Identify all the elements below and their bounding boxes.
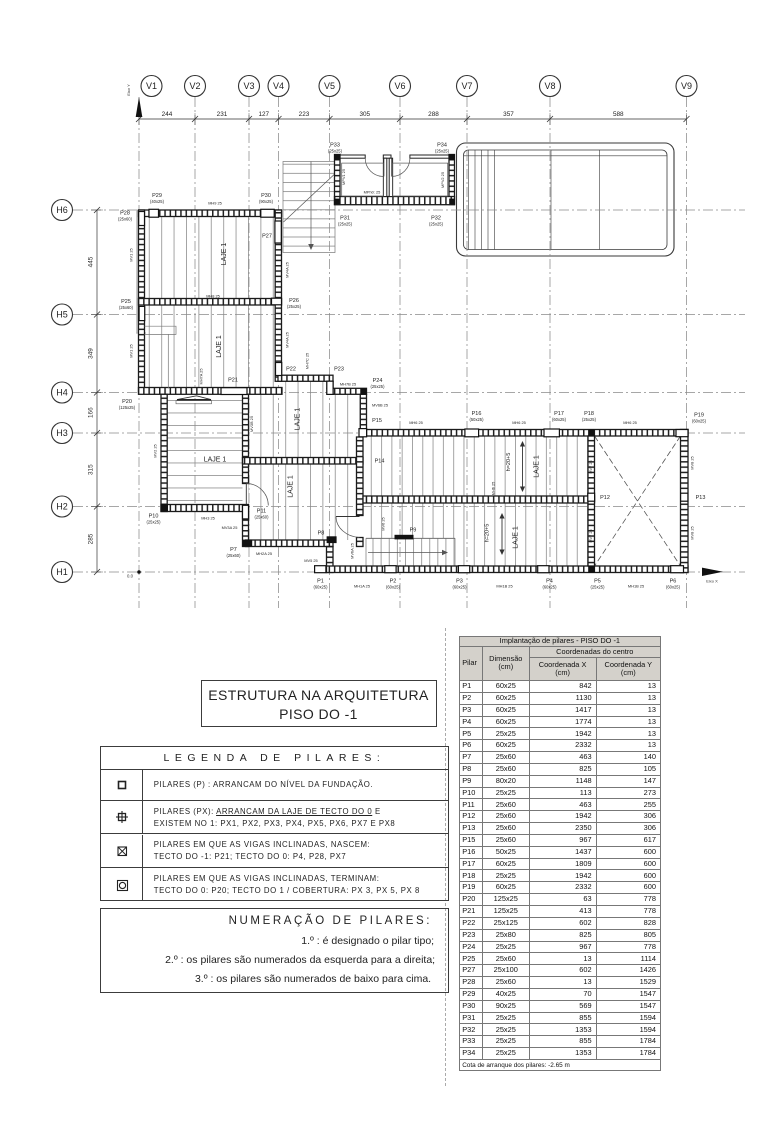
svg-text:MV1 25: MV1 25 xyxy=(129,344,134,357)
svg-text:MV7 25: MV7 25 xyxy=(588,529,593,542)
svg-text:MV4A 25: MV4A 25 xyxy=(284,262,289,278)
svg-text:(25x60): (25x60) xyxy=(227,553,242,558)
svg-text:MH7B 25: MH7B 25 xyxy=(340,382,356,387)
svg-text:(25x60): (25x60) xyxy=(255,515,270,520)
svg-text:0.0: 0.0 xyxy=(127,574,134,579)
svg-text:LAJE 1: LAJE 1 xyxy=(534,455,541,478)
svg-text:P23: P23 xyxy=(334,367,344,373)
svg-text:MH8 25: MH8 25 xyxy=(206,294,220,299)
svg-text:(25x25): (25x25) xyxy=(582,417,597,422)
svg-text:LAJE 1: LAJE 1 xyxy=(216,335,223,358)
svg-text:285: 285 xyxy=(88,533,95,544)
svg-text:(25x60): (25x60) xyxy=(118,217,133,222)
svg-text:(25x25): (25x25) xyxy=(287,304,302,309)
svg-text:(90x25): (90x25) xyxy=(259,199,274,204)
svg-text:(25x60): (25x60) xyxy=(119,305,134,310)
svg-text:(60x25): (60x25) xyxy=(552,417,567,422)
svg-text:MPV2 25: MPV2 25 xyxy=(440,172,445,188)
svg-text:P8: P8 xyxy=(318,531,325,537)
svg-text:(25x25): (25x25) xyxy=(591,585,606,590)
svg-text:(25x25): (25x25) xyxy=(429,221,444,226)
svg-text:(50x25): (50x25) xyxy=(470,417,485,422)
svg-text:P21: P21 xyxy=(228,378,238,384)
svg-text:349: 349 xyxy=(88,348,95,359)
svg-text:P13: P13 xyxy=(696,495,706,501)
svg-text:(60x25): (60x25) xyxy=(314,585,329,590)
svg-text:MV6B 25: MV6B 25 xyxy=(372,403,388,408)
svg-text:(25x25): (25x25) xyxy=(338,221,353,226)
svg-text:LAJE 1: LAJE 1 xyxy=(295,408,302,431)
svg-text:V3: V3 xyxy=(243,81,254,91)
svg-text:P14: P14 xyxy=(375,459,385,465)
svg-text:MH6 25: MH6 25 xyxy=(623,420,637,425)
svg-text:Eixo Y: Eixo Y xyxy=(126,84,131,96)
svg-text:(60x25): (60x25) xyxy=(386,585,401,590)
svg-text:MV7 25: MV7 25 xyxy=(588,460,593,473)
svg-text:166: 166 xyxy=(88,407,95,418)
svg-text:H3: H3 xyxy=(56,428,68,438)
svg-text:LAJE 1: LAJE 1 xyxy=(204,457,227,464)
svg-text:P9: P9 xyxy=(410,528,417,534)
svg-text:(25x25): (25x25) xyxy=(328,148,343,153)
svg-text:MH3 25: MH3 25 xyxy=(201,516,215,521)
svg-text:305: 305 xyxy=(359,111,370,118)
svg-text:(60x25): (60x25) xyxy=(453,585,468,590)
svg-text:MH6 25: MH6 25 xyxy=(491,482,496,496)
svg-text:V7: V7 xyxy=(461,81,472,91)
svg-text:(60x25): (60x25) xyxy=(692,419,707,424)
svg-text:V2: V2 xyxy=(189,81,200,91)
svg-text:h=20+5: h=20+5 xyxy=(506,453,512,472)
svg-text:MV4A 25: MV4A 25 xyxy=(284,332,289,348)
svg-text:H4: H4 xyxy=(56,388,68,398)
svg-text:V5: V5 xyxy=(324,81,335,91)
svg-text:MH6 25: MH6 25 xyxy=(512,420,526,425)
svg-text:MV8 25: MV8 25 xyxy=(690,456,695,469)
svg-text:MPV1 25: MPV1 25 xyxy=(341,169,346,185)
svg-text:H6: H6 xyxy=(56,205,68,215)
svg-text:V1: V1 xyxy=(146,81,157,91)
svg-text:LAJE 1: LAJE 1 xyxy=(513,526,520,549)
svg-text:H2: H2 xyxy=(56,502,68,512)
svg-text:(60x25): (60x25) xyxy=(543,585,558,590)
svg-text:V6: V6 xyxy=(394,81,405,91)
svg-text:LAJE 1: LAJE 1 xyxy=(221,243,228,266)
svg-text:MH6 25: MH6 25 xyxy=(409,420,423,425)
svg-text:h=20+5: h=20+5 xyxy=(485,524,491,543)
svg-text:P15: P15 xyxy=(372,418,382,424)
svg-text:288: 288 xyxy=(428,111,439,118)
svg-text:588: 588 xyxy=(613,111,624,118)
svg-text:223: 223 xyxy=(299,111,310,118)
svg-text:MH1B 25: MH1B 25 xyxy=(628,584,644,589)
svg-text:H1: H1 xyxy=(56,567,68,577)
svg-text:MV3A 25: MV3A 25 xyxy=(222,525,238,530)
svg-text:MH2A 25: MH2A 25 xyxy=(256,551,272,556)
svg-text:MV6A 25: MV6A 25 xyxy=(350,543,355,559)
svg-text:MV5 25: MV5 25 xyxy=(304,558,317,563)
svg-text:315: 315 xyxy=(88,464,95,475)
svg-text:(25x25): (25x25) xyxy=(435,148,450,153)
svg-text:Eixo X: Eixo X xyxy=(706,579,718,584)
svg-text:MV2 25: MV2 25 xyxy=(153,444,158,457)
svg-text:244: 244 xyxy=(162,111,173,118)
svg-text:MH7A 25: MH7A 25 xyxy=(199,368,204,384)
svg-text:445: 445 xyxy=(88,256,95,267)
svg-text:(40x25): (40x25) xyxy=(150,199,165,204)
svg-text:357: 357 xyxy=(503,111,514,118)
svg-text:MPh0: 25: MPh0: 25 xyxy=(364,190,381,195)
svg-text:(125x25): (125x25) xyxy=(119,405,136,410)
svg-text:P12: P12 xyxy=(600,495,610,501)
svg-text:(60x25): (60x25) xyxy=(666,585,681,590)
svg-text:P22: P22 xyxy=(286,367,296,373)
svg-text:(25x25): (25x25) xyxy=(147,520,162,525)
svg-text:MV3B 25: MV3B 25 xyxy=(249,416,254,432)
svg-text:MH1A 25: MH1A 25 xyxy=(354,584,370,589)
svg-text:H5: H5 xyxy=(56,310,68,320)
svg-text:(25x25): (25x25) xyxy=(371,384,386,389)
svg-text:MV6 25: MV6 25 xyxy=(381,517,386,530)
svg-text:MV1 25: MV1 25 xyxy=(129,248,134,261)
svg-text:MH9 25: MH9 25 xyxy=(208,201,222,206)
svg-text:V9: V9 xyxy=(681,81,692,91)
svg-text:231: 231 xyxy=(217,111,228,118)
svg-text:P27: P27 xyxy=(262,234,272,240)
svg-text:LAJE 1: LAJE 1 xyxy=(288,475,295,498)
svg-text:MH7C 25: MH7C 25 xyxy=(305,353,310,369)
svg-text:MH1B 25: MH1B 25 xyxy=(496,584,512,589)
svg-text:V8: V8 xyxy=(544,81,555,91)
svg-text:127: 127 xyxy=(258,111,269,118)
svg-text:V4: V4 xyxy=(273,81,284,91)
svg-text:MV8 25: MV8 25 xyxy=(690,526,695,539)
